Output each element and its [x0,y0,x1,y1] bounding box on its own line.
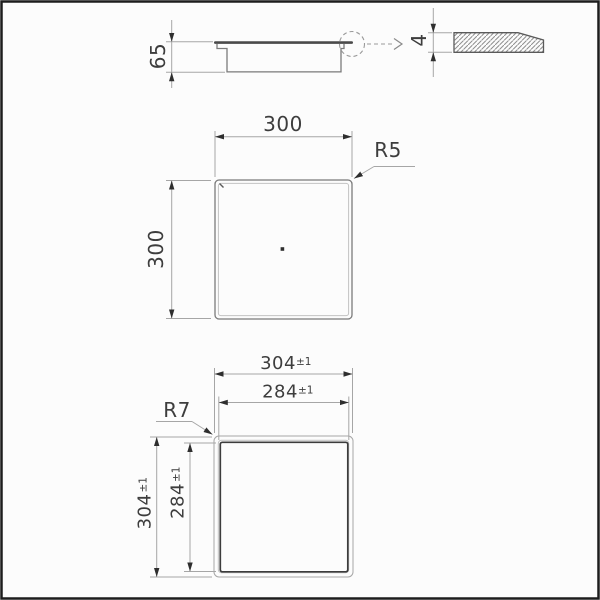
side-view: 65 [146,20,402,88]
center-mark [281,247,285,251]
detail-callout-circle [340,32,365,57]
thickness-dimension-label: 4 [407,33,431,46]
technical-drawing: 65 4 300 300 [0,0,600,600]
radius-label-r5: R5 [374,138,402,162]
outer-width-tolerance: ±1 [296,356,311,368]
leader-arrow [192,422,213,435]
outer-width-dimension-label: 304 [260,353,296,374]
glass-outline-overlay [214,436,353,577]
inner-width-tolerance: ±1 [298,385,313,397]
height-dimension-label: 65 [146,43,170,69]
detail-section-view: 4 [407,8,544,77]
cutout-view: 304 ±1 284 ±1 R7 304 ±1 284 ±1 [135,353,354,577]
hob-body-profile [217,44,344,72]
drawing-canvas: 65 4 300 300 [0,0,600,600]
detail-pointer-arrowhead [394,39,402,50]
cutout-opening-outline [220,442,347,572]
glass-section-hatched [454,33,544,53]
leader-arrow [354,167,374,179]
page-border [2,2,599,599]
outer-height-tolerance: ±1 [138,477,150,492]
inner-height-dimension-label: 284 [168,483,189,519]
radius-label-r7: R7 [163,398,191,422]
height-dimension-label: 300 [144,229,168,269]
glass-facet-line [218,440,348,572]
inner-height-tolerance: ±1 [171,467,183,482]
outer-height-dimension-label: 304 [135,494,156,530]
plan-view: 300 300 R5 [144,112,415,319]
glass-plate-profile [214,41,353,44]
inner-width-dimension-label: 284 [262,382,298,403]
corner-tick-mark [220,184,224,188]
width-dimension-label: 300 [263,112,303,136]
